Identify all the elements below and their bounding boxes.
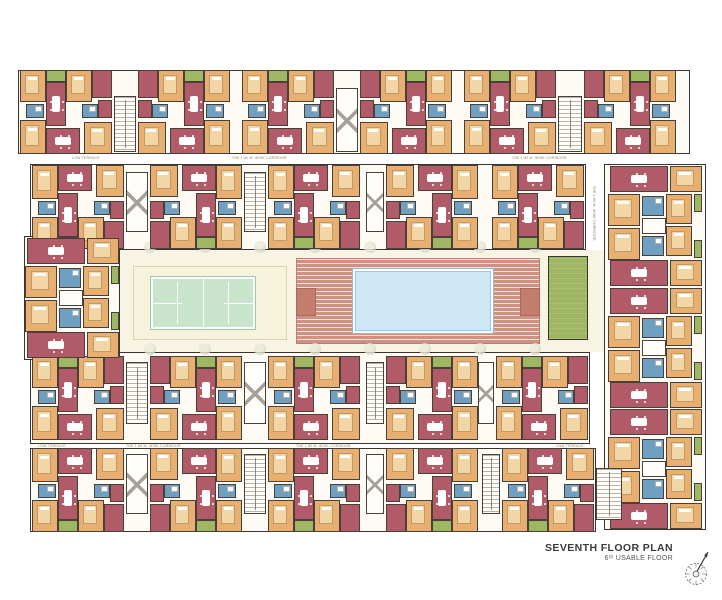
pillow-icon [414, 224, 424, 227]
pillow-icon [224, 173, 234, 176]
chair-icon [522, 212, 524, 214]
room-bedroom [426, 120, 452, 154]
chair-icon [526, 395, 528, 397]
pillow-icon [679, 266, 691, 269]
chair-icon [414, 147, 416, 149]
room-living [610, 409, 668, 435]
title-block: SEVENTH FLOOR PLAN 6ᵗʰ USABLE FLOOR [508, 542, 673, 562]
chair-icon [644, 428, 646, 430]
bed-icon [515, 75, 529, 94]
chair-icon [636, 428, 638, 430]
stair-divider [609, 472, 610, 516]
room-toilet [400, 484, 416, 498]
chair-icon [196, 467, 198, 469]
bed-icon [37, 505, 51, 524]
room-bedroom [502, 500, 528, 532]
room-toilet [554, 201, 570, 215]
chair-icon [62, 101, 64, 103]
pillow-icon [592, 129, 602, 132]
pillow-icon [178, 507, 188, 510]
bed-icon [676, 507, 693, 522]
chair-icon [644, 389, 646, 391]
chair-icon [196, 455, 198, 457]
room-bedroom [332, 448, 360, 480]
bed-icon [497, 222, 511, 241]
dining-table-icon [631, 391, 647, 399]
chair-icon [636, 185, 638, 187]
chair-icon [53, 351, 55, 353]
room-bedroom [314, 356, 340, 388]
room-bedroom [306, 122, 334, 154]
room-toilet [274, 201, 292, 215]
pillow-icon [568, 415, 578, 418]
chair-icon [646, 101, 648, 103]
chair-icon [636, 389, 638, 391]
bed-icon [319, 222, 333, 241]
wc-fixture-icon [571, 486, 578, 492]
bed-icon [31, 305, 48, 324]
pillow-icon [504, 363, 514, 366]
room-bedroom [670, 288, 702, 314]
room-bedroom [608, 437, 640, 469]
room-bedroom [452, 448, 478, 482]
pillow-icon [104, 415, 114, 418]
chair-icon [636, 522, 638, 524]
room-bedroom [666, 437, 692, 467]
room-living [518, 193, 538, 237]
lift-shaft [366, 454, 384, 514]
bed-icon [457, 222, 471, 241]
room-toilet [164, 390, 180, 404]
planter-icon [364, 343, 376, 355]
room-bedroom [548, 500, 574, 532]
room-balcony [196, 356, 216, 368]
chair-icon [212, 395, 214, 397]
pillow-icon [166, 77, 176, 80]
wc-fixture-icon [407, 392, 414, 398]
chair-icon [61, 351, 63, 353]
chair-icon [62, 109, 64, 111]
pillow-icon [658, 77, 668, 80]
wc-fixture-icon [47, 203, 54, 209]
chair-icon [310, 395, 312, 397]
chair-icon [68, 147, 70, 149]
wc-fixture-icon [511, 392, 518, 398]
pillow-icon [40, 173, 50, 176]
chair-icon [506, 101, 508, 103]
wc-fixture-icon [101, 203, 108, 209]
chair-icon [432, 184, 434, 186]
chair-icon [298, 387, 300, 389]
bed-icon [411, 361, 425, 380]
chair-icon [512, 135, 514, 137]
pillow-icon [224, 507, 234, 510]
staircase [558, 96, 582, 152]
bed-icon [469, 125, 483, 145]
room-bedroom [83, 266, 109, 296]
room-living [536, 70, 556, 98]
deck-seat [296, 288, 316, 316]
room-living [418, 414, 452, 440]
bed-icon [37, 361, 51, 380]
pillow-icon [276, 456, 286, 459]
room-bedroom [314, 217, 340, 249]
room-bedroom [542, 356, 568, 388]
room-bedroom [83, 298, 109, 328]
room-bedroom [32, 500, 58, 532]
pillow-icon [394, 415, 404, 418]
bed-icon [319, 505, 333, 524]
chair-icon [410, 109, 412, 111]
room-living [110, 484, 124, 502]
pillow-icon [34, 273, 46, 276]
chair-icon [440, 433, 442, 435]
floor-plan-drawing: LOW TERRACETHE 1.80 M. WIDE CORRIDORTHE … [0, 0, 722, 600]
bed-icon [88, 303, 102, 321]
chair-icon [432, 455, 434, 457]
dining-table-icon [631, 175, 647, 183]
lift-core [59, 290, 83, 306]
dining-table-icon [64, 207, 72, 223]
chair-icon [80, 455, 82, 457]
terrace-label: LOW TERRACE [556, 444, 584, 448]
pillow-icon [617, 235, 629, 238]
room-living [522, 414, 556, 440]
chair-icon [62, 220, 64, 222]
pillow-icon [460, 224, 470, 227]
room-bedroom [216, 165, 242, 199]
pillow-icon [224, 456, 234, 459]
wc-fixture-icon [463, 392, 470, 398]
room-living [150, 504, 170, 532]
room-living [58, 476, 78, 520]
bed-icon [507, 453, 521, 473]
room-bedroom [492, 217, 518, 249]
chair-icon [188, 109, 190, 111]
stair-divider [491, 458, 492, 509]
pillow-icon [388, 77, 398, 80]
chair-icon [62, 395, 64, 397]
room-toilet [374, 104, 390, 118]
chair-icon [644, 416, 646, 418]
bed-icon [385, 75, 399, 94]
room-balcony [694, 194, 702, 212]
pillow-icon [679, 509, 691, 512]
chair-icon [200, 220, 202, 222]
room-toilet [164, 201, 180, 215]
room-living [294, 193, 314, 237]
chair-icon [534, 212, 536, 214]
room-bedroom [464, 120, 490, 154]
dining-table-icon [499, 137, 515, 145]
room-living [104, 356, 124, 384]
pillow-icon [617, 201, 629, 204]
pillow-icon [574, 455, 584, 458]
dining-table-icon [438, 382, 446, 398]
chair-icon [192, 147, 194, 149]
room-living [150, 356, 170, 384]
room-living [490, 82, 510, 126]
chair-icon [80, 172, 82, 174]
chair-icon [534, 220, 536, 222]
chair-icon [636, 510, 638, 512]
chair-icon [284, 109, 286, 111]
chair-icon [436, 387, 438, 389]
room-bedroom [464, 70, 490, 102]
bed-icon [175, 222, 189, 241]
room-bedroom [670, 382, 702, 408]
pillow-icon [617, 357, 629, 360]
wc-fixture-icon [655, 360, 662, 366]
room-bedroom [314, 500, 340, 532]
room-bedroom [216, 217, 242, 249]
room-balcony [518, 237, 538, 249]
pillow-icon [556, 507, 566, 510]
room-balcony [294, 356, 314, 368]
bed-icon [93, 242, 110, 257]
wc-fixture-icon [463, 203, 470, 209]
room-bedroom [268, 448, 294, 482]
chair-icon [196, 184, 198, 186]
chair-icon [644, 510, 646, 512]
dining-table-icon [631, 512, 647, 520]
chair-icon [506, 109, 508, 111]
room-bedroom [242, 120, 268, 154]
room-toilet [206, 104, 224, 118]
bed-icon [37, 170, 51, 190]
chair-icon [72, 184, 74, 186]
pillow-icon [679, 172, 691, 175]
room-bedroom [87, 238, 119, 264]
room-toilet [304, 104, 320, 118]
pillow-icon [86, 363, 96, 366]
wc-fixture-icon [479, 106, 486, 112]
chair-icon [200, 387, 202, 389]
chair-icon [432, 433, 434, 435]
chair-icon [298, 495, 300, 497]
chair-icon [290, 135, 292, 137]
room-bedroom [150, 448, 178, 480]
room-toilet [642, 358, 664, 378]
chair-icon [212, 220, 214, 222]
bed-icon [614, 233, 631, 252]
room-bedroom [25, 300, 57, 332]
bed-icon [102, 453, 117, 472]
pillow-icon [40, 363, 50, 366]
chair-icon [636, 279, 638, 281]
chair-icon [646, 109, 648, 111]
wc-fixture-icon [517, 486, 524, 492]
room-balcony [694, 316, 702, 334]
room-bedroom [608, 228, 640, 260]
room-living [196, 193, 216, 237]
bed-icon [614, 321, 631, 340]
pillow-icon [460, 173, 470, 176]
room-living [518, 165, 552, 191]
pillow-icon [340, 415, 350, 418]
bed-icon [90, 127, 105, 146]
chair-icon [540, 184, 542, 186]
chair-icon [316, 433, 318, 435]
bed-icon [25, 125, 39, 145]
dining-table-icon [427, 423, 443, 431]
room-toilet [502, 390, 520, 404]
bed-icon [392, 413, 407, 432]
chair-icon [61, 339, 63, 341]
chair-icon [200, 109, 202, 111]
room-living [46, 128, 80, 154]
room-toilet [652, 104, 670, 118]
wc-fixture-icon [655, 320, 662, 326]
room-bedroom [216, 356, 242, 388]
dining-table-icon [277, 137, 293, 145]
room-toilet [642, 479, 664, 499]
wc-fixture-icon [171, 486, 178, 492]
stair-divider [137, 367, 138, 420]
room-living [584, 70, 604, 98]
chair-icon [406, 135, 408, 137]
bed-icon [88, 271, 102, 289]
chair-icon [80, 433, 82, 435]
deck-seat [520, 288, 540, 316]
staircase [366, 362, 384, 424]
bed-icon [469, 75, 483, 94]
dining-table-icon [274, 96, 282, 112]
room-toilet [59, 308, 81, 328]
pillow-icon [322, 224, 332, 227]
room-living [58, 368, 78, 412]
chair-icon [644, 307, 646, 309]
pillow-icon [104, 172, 114, 175]
room-bedroom [204, 120, 230, 154]
bed-icon [156, 453, 171, 472]
chair-icon [550, 467, 552, 469]
pillow-icon [460, 414, 470, 417]
pillow-icon [394, 172, 404, 175]
chair-icon [532, 495, 534, 497]
chair-icon [72, 172, 74, 174]
room-living [574, 386, 588, 404]
pillow-icon [74, 77, 84, 80]
room-toilet [400, 201, 416, 215]
room-bedroom [32, 356, 58, 388]
chair-icon [440, 184, 442, 186]
pillow-icon [617, 444, 629, 447]
wc-fixture-icon [89, 106, 96, 112]
chair-icon [422, 109, 424, 111]
lift-shaft [336, 88, 358, 152]
room-living [150, 201, 164, 219]
room-living [392, 128, 426, 154]
room-bedroom [406, 500, 432, 532]
pillow-icon [472, 77, 482, 80]
room-bedroom [32, 165, 58, 199]
chair-icon [53, 245, 55, 247]
planter-icon [419, 343, 431, 355]
bed-icon [366, 127, 381, 146]
room-bedroom [666, 194, 692, 224]
dining-table-icon [531, 423, 547, 431]
room-living [630, 82, 650, 126]
wc-fixture-icon [311, 106, 318, 112]
chair-icon [316, 421, 318, 423]
room-balcony [268, 70, 288, 82]
planter-icon [309, 343, 321, 355]
chair-icon [512, 147, 514, 149]
room-bedroom [670, 166, 702, 192]
chair-icon [62, 387, 64, 389]
chair-icon [74, 387, 76, 389]
stair-divider [570, 100, 571, 148]
dining-table-icon [438, 207, 446, 223]
bed-icon [501, 411, 515, 431]
chair-icon [634, 109, 636, 111]
bed-icon [507, 505, 521, 524]
room-balcony [694, 437, 702, 455]
room-bedroom [32, 406, 58, 440]
chair-icon [538, 387, 540, 389]
staircase [114, 96, 136, 152]
room-living [386, 386, 400, 404]
chair-icon [298, 503, 300, 505]
bed-icon [221, 453, 235, 473]
room-toilet [400, 390, 416, 404]
chair-icon [310, 495, 312, 497]
chair-icon [284, 101, 286, 103]
wc-fixture-icon [72, 310, 79, 316]
room-toilet [274, 484, 292, 498]
dining-table-icon [202, 382, 210, 398]
pillow-icon [158, 415, 168, 418]
chair-icon [50, 109, 52, 111]
pillow-icon [28, 128, 38, 131]
chair-icon [74, 220, 76, 222]
dining-table-icon [412, 96, 420, 112]
dining-table-icon [190, 96, 198, 112]
room-living [360, 70, 380, 98]
pillow-icon [340, 455, 350, 458]
chair-icon [536, 433, 538, 435]
chair-icon [414, 135, 416, 137]
bed-icon [31, 271, 48, 290]
room-living [418, 448, 452, 474]
room-bedroom [510, 70, 536, 102]
chair-icon [636, 173, 638, 175]
bed-icon [676, 170, 693, 185]
bed-icon [676, 413, 693, 428]
room-bedroom [666, 226, 692, 256]
chair-icon [644, 267, 646, 269]
chair-icon [298, 395, 300, 397]
pillow-icon [212, 128, 222, 131]
room-toilet [164, 484, 180, 498]
chair-icon [448, 503, 450, 505]
pillow-icon [40, 507, 50, 510]
room-balcony [694, 362, 702, 380]
bed-icon [221, 361, 235, 380]
wc-fixture-icon [337, 392, 344, 398]
room-bedroom [360, 122, 388, 154]
room-living [58, 193, 78, 237]
pillow-icon [500, 224, 510, 227]
pillow-icon [674, 444, 684, 447]
chair-icon [532, 503, 534, 505]
chair-icon [542, 455, 544, 457]
room-bedroom [670, 260, 702, 286]
chair-icon [432, 172, 434, 174]
chair-icon [272, 109, 274, 111]
bed-icon [156, 170, 171, 189]
